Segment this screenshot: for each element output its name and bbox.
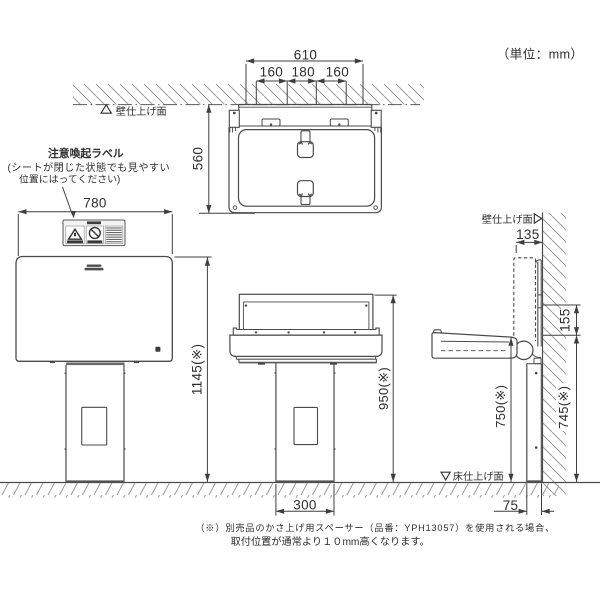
svg-text:（※）別売品のかさ上げ用スペーサー（品番：YPH13057）: （※）別売品のかさ上げ用スペーサー（品番：YPH13057）を使用される場合、 [195,522,555,533]
svg-text:（単位：mm）: （単位：mm） [497,46,584,61]
svg-text:745(※): 745(※) [556,386,571,429]
svg-text:610: 610 [294,48,317,63]
svg-text:135: 135 [516,227,539,242]
svg-text:160: 160 [326,65,349,80]
svg-text:160: 160 [260,65,283,80]
svg-text:位置にはってください): 位置にはってください) [19,172,120,185]
svg-text:560: 560 [191,147,206,170]
svg-text:取付位置が通常より１０mm高くなります。: 取付位置が通常より１０mm高くなります。 [231,535,430,548]
svg-text:780: 780 [83,196,106,211]
svg-text:300: 300 [293,497,316,512]
svg-text:750(※): 750(※) [493,385,508,428]
svg-text:180: 180 [291,65,314,80]
svg-text:床仕上げ面: 床仕上げ面 [453,470,504,483]
svg-text:950(※): 950(※) [376,367,391,410]
svg-text:155: 155 [557,308,572,331]
svg-text:壁仕上げ面: 壁仕上げ面 [482,213,533,226]
svg-text:壁仕上げ面: 壁仕上げ面 [116,105,167,118]
svg-text:注意喚起ラベル: 注意喚起ラベル [48,146,124,160]
svg-text:75: 75 [503,498,519,513]
svg-text:(シートが閉じた状態でも見やすい: (シートが閉じた状態でも見やすい [8,161,171,174]
svg-text:1145(※): 1145(※) [190,344,205,395]
